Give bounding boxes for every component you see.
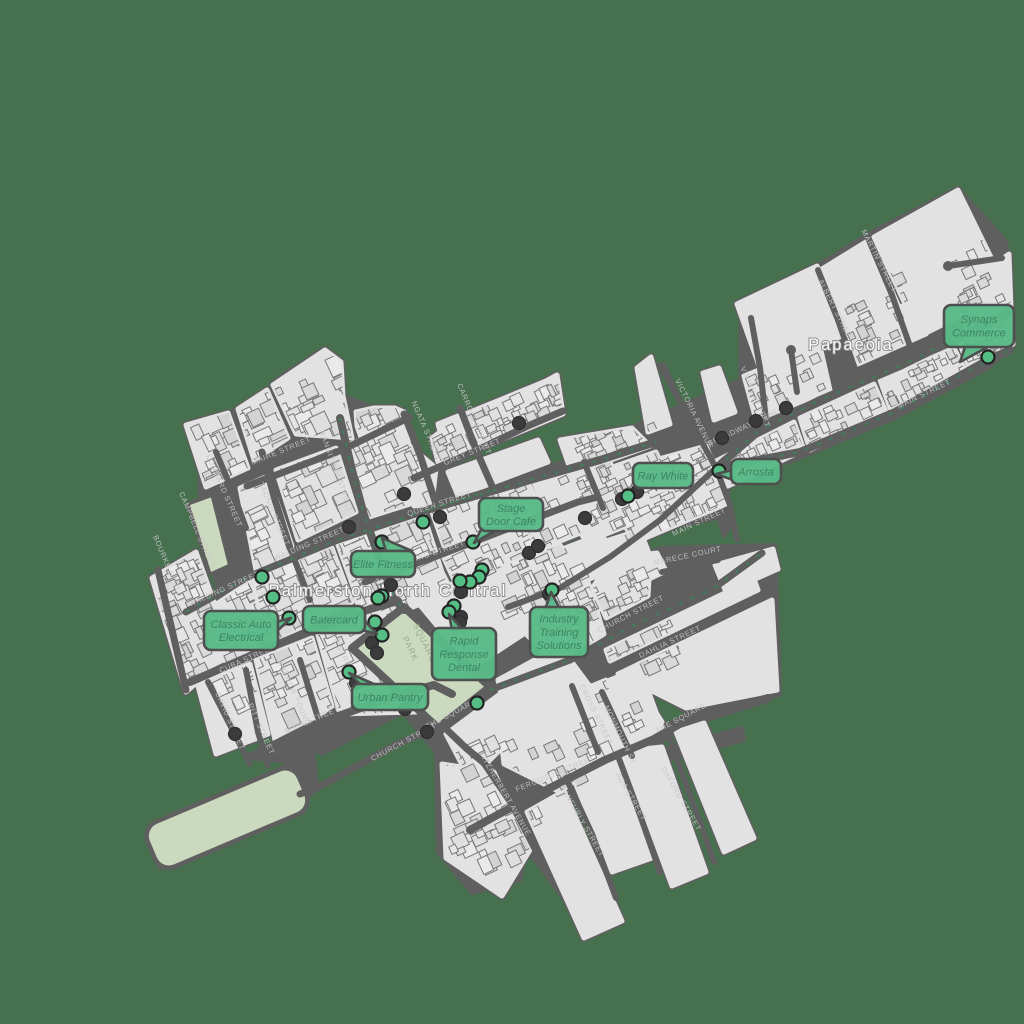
svg-text:Dental: Dental [448, 662, 480, 674]
svg-text:Response: Response [439, 649, 489, 661]
svg-text:Synaps: Synaps [961, 314, 998, 326]
svg-text:Stage: Stage [497, 503, 526, 515]
svg-text:Elite Fitness: Elite Fitness [353, 559, 413, 571]
svg-text:Solutions: Solutions [536, 640, 582, 652]
svg-text:Industry: Industry [539, 614, 580, 626]
svg-text:Urban Pantry: Urban Pantry [358, 692, 424, 704]
svg-text:Batercard: Batercard [310, 614, 359, 626]
svg-text:Ray White: Ray White [638, 470, 689, 482]
svg-text:Arrosta: Arrosta [737, 466, 773, 478]
svg-text:Papaeoia: Papaeoia [808, 336, 894, 354]
svg-text:Commerce: Commerce [952, 327, 1006, 339]
svg-text:Electrical: Electrical [219, 632, 264, 644]
svg-text:Classic Auto: Classic Auto [211, 619, 272, 631]
svg-text:Door Cafe: Door Cafe [486, 516, 536, 528]
svg-text:Rapid: Rapid [450, 636, 480, 648]
svg-text:Training: Training [540, 627, 580, 639]
